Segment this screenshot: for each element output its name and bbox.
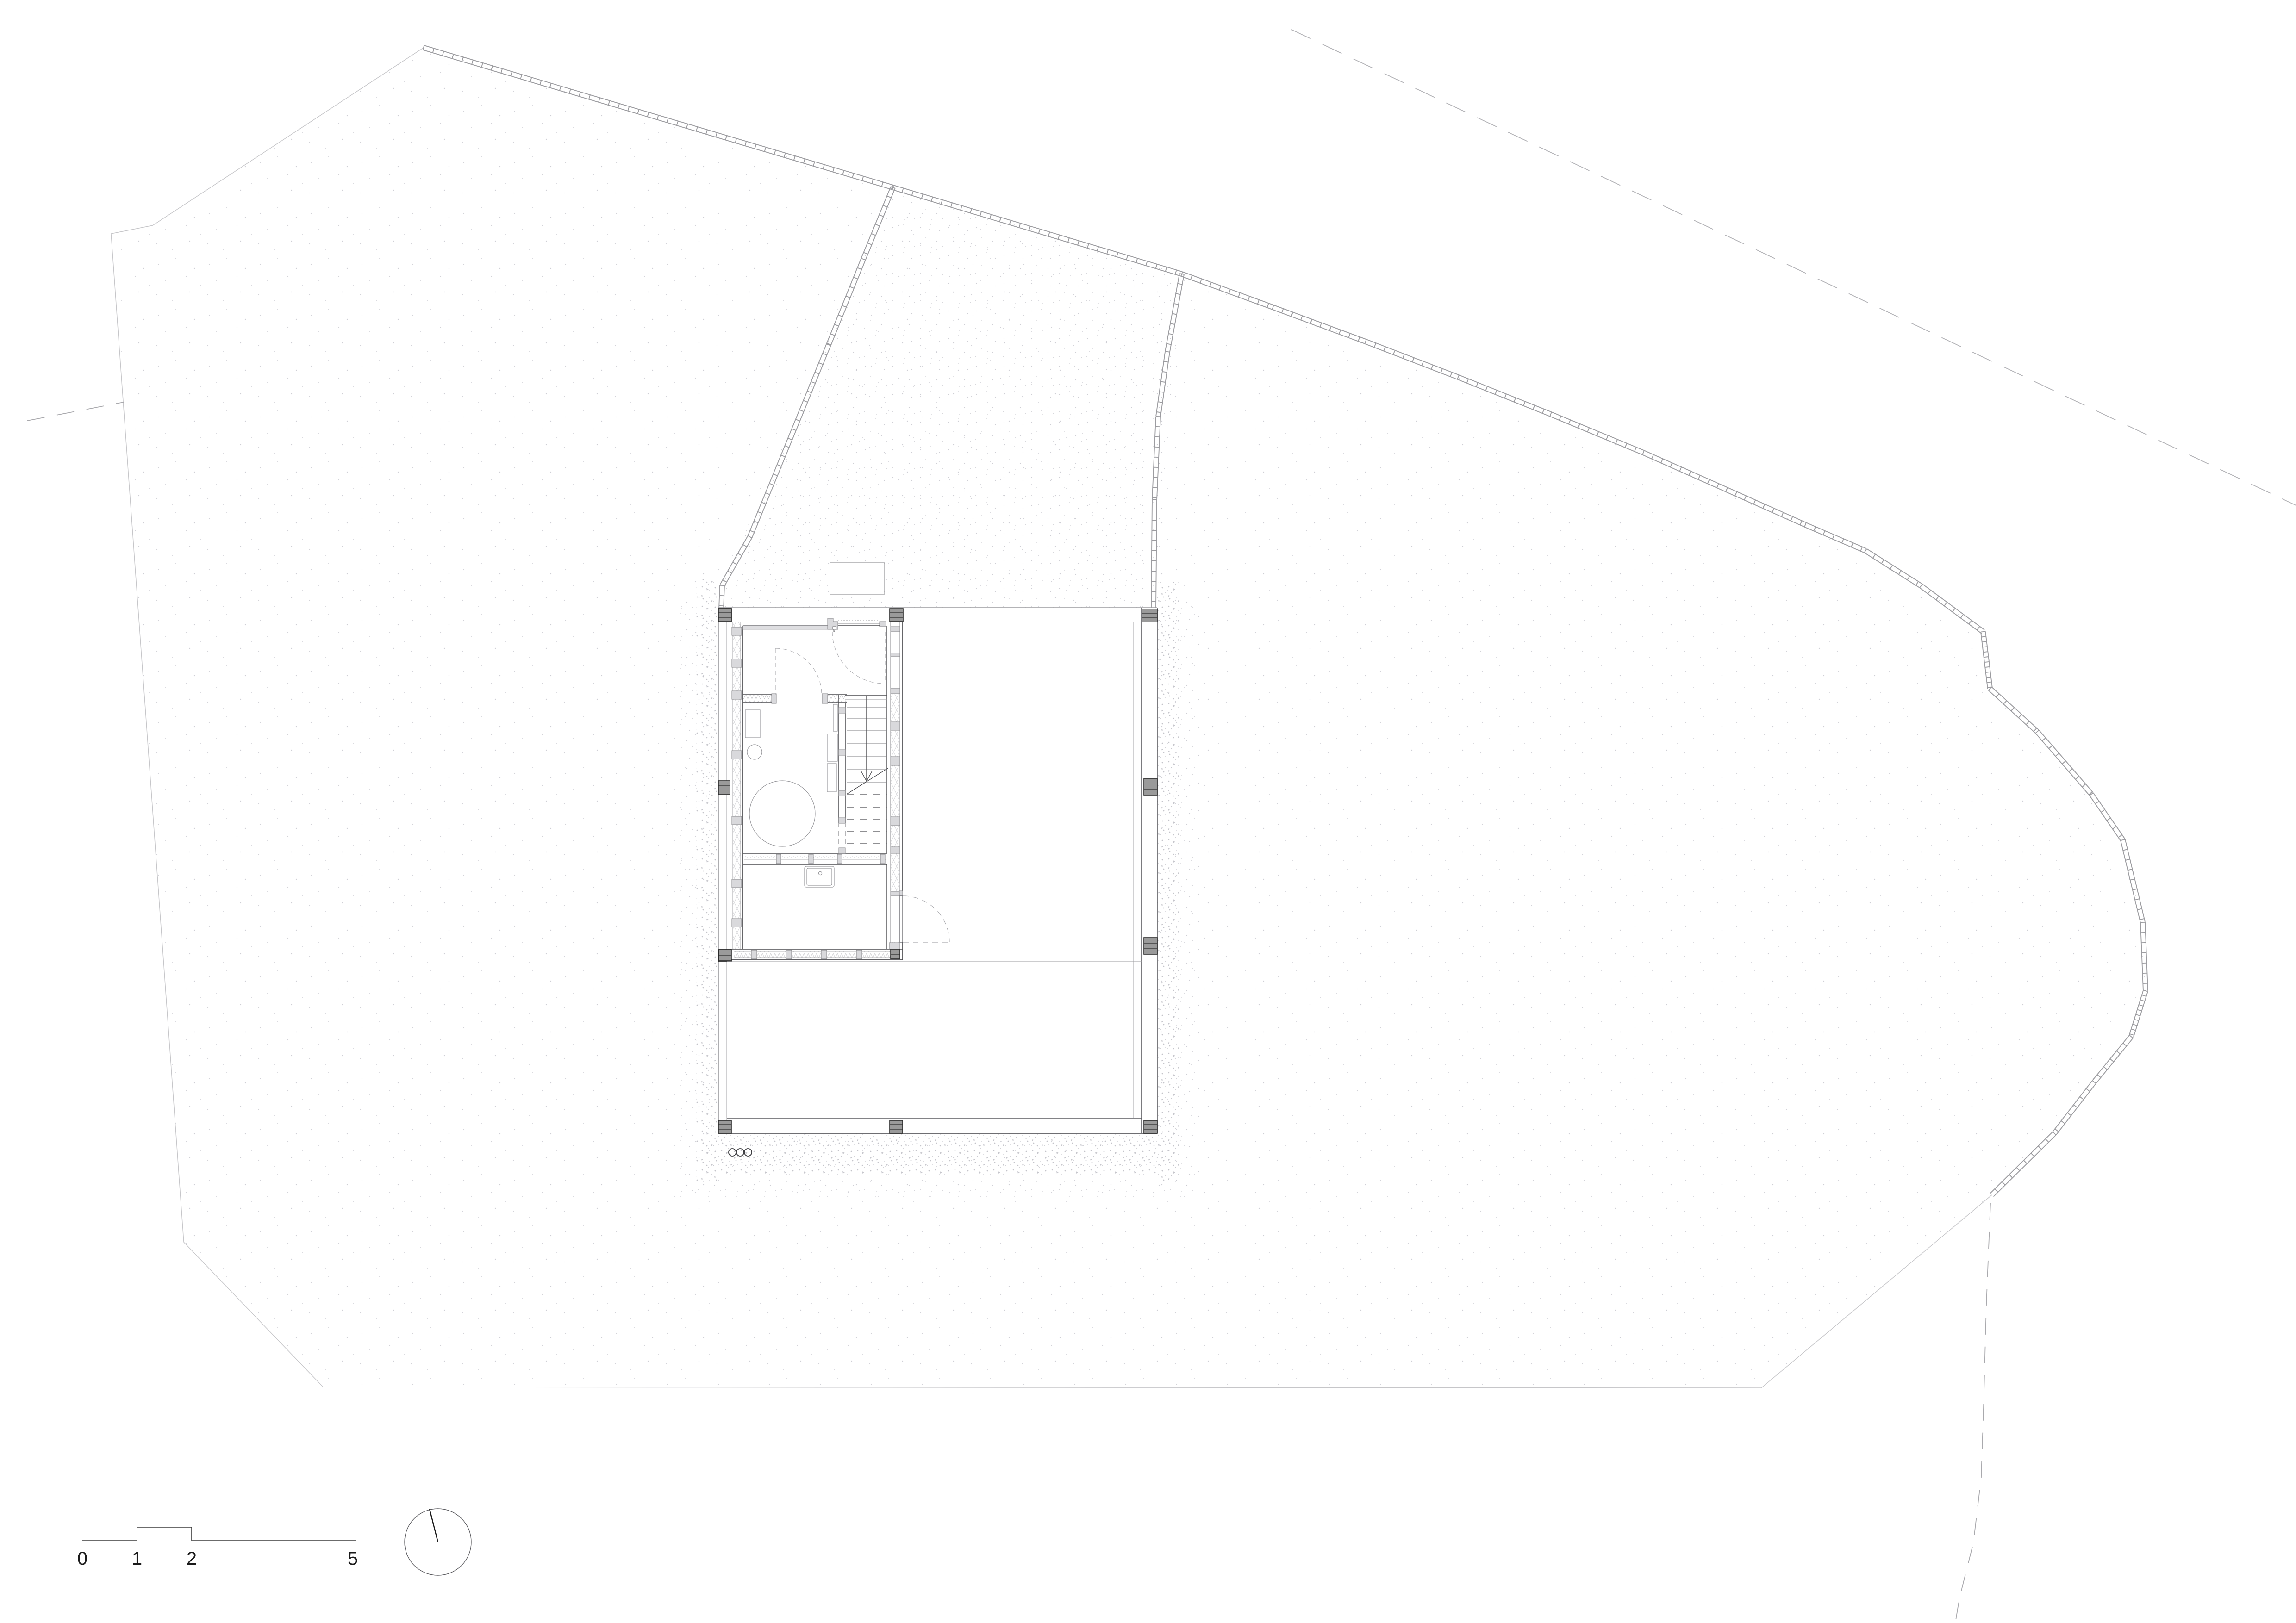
- svg-text:5: 5: [348, 1548, 358, 1569]
- svg-text:1: 1: [132, 1548, 142, 1569]
- svg-text:0: 0: [77, 1548, 87, 1569]
- svg-text:2: 2: [187, 1548, 197, 1569]
